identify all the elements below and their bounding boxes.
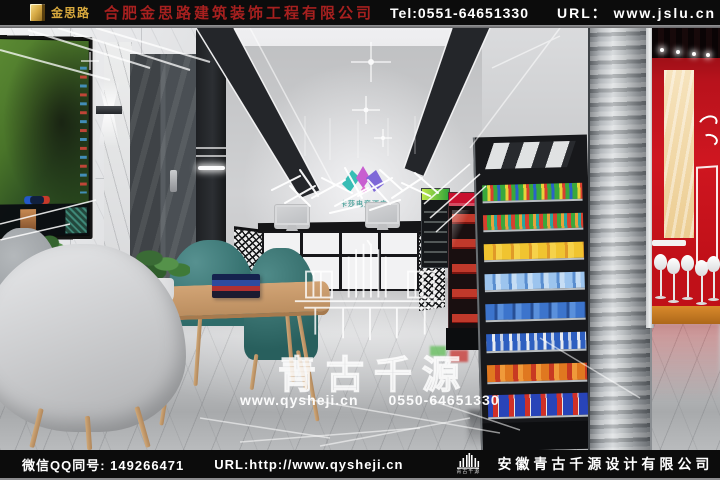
wall-tv <box>0 35 93 241</box>
header-website-url: URL： www.jslu.cn <box>557 3 716 23</box>
hotel-logo-icon <box>336 164 390 198</box>
cola-script-graphic <box>701 132 719 148</box>
header-telephone: Tel:0551-64651330 <box>390 5 529 21</box>
jinsilu-logo-icon <box>30 4 45 21</box>
red-room-floor-reflection <box>642 322 720 418</box>
bar-stool <box>654 254 667 270</box>
tv-game-screen <box>0 39 89 237</box>
book-stack <box>212 274 260 298</box>
header-bar: 金思路 合肥金思路建筑装饰工程有限公司 Tel:0551-64651330 UR… <box>0 0 720 25</box>
red-cola-room <box>652 28 720 324</box>
bar-stool <box>667 258 680 274</box>
interior-render: 卡莎电竞酒店 <box>0 28 720 450</box>
door-handle <box>170 170 177 192</box>
qingu-building-icon <box>455 453 481 469</box>
footer-company-name: 安徽青古千源设计有限公司 <box>497 454 713 474</box>
footer-logo-caption: 青古千源 <box>456 468 480 475</box>
stainless-steel-pillar <box>588 28 652 450</box>
desktop-computer-left <box>274 204 310 229</box>
tv-score-pill <box>24 196 50 204</box>
bar-counter <box>652 240 686 246</box>
bar-stool <box>681 255 694 271</box>
snack-shelf <box>473 135 595 450</box>
green-sign-reflection <box>430 346 446 356</box>
tv-hud-right <box>80 67 87 194</box>
promo-image: 金思路 合肥金思路建筑装饰工程有限公司 Tel:0551-64651330 UR… <box>0 0 720 480</box>
footer-bar: 微信QQ同号: 149266471 URL:http://www.qysheji… <box>0 450 720 478</box>
tv-minimap <box>65 207 86 233</box>
cream-texture-panel <box>664 70 694 238</box>
red-sign-reflection <box>450 350 468 362</box>
shelf-base <box>482 420 595 450</box>
drink-cooler-green <box>421 188 450 268</box>
footer-website-url: URL:http://www.qysheji.cn <box>214 457 403 472</box>
bar-stool <box>707 256 720 272</box>
desktop-computer-right <box>365 202 400 228</box>
shelf-light-panels <box>485 141 576 169</box>
header-logo-text: 金思路 <box>51 4 90 21</box>
led-wall-light <box>198 166 225 170</box>
footer-qq-number: 微信QQ同号: 149266471 <box>22 455 184 474</box>
qingu-logo: 青古千源 <box>455 453 481 475</box>
cola-script-graphic <box>696 113 720 134</box>
white-frame-outline <box>696 165 718 265</box>
wall-sconce-light <box>96 106 122 114</box>
header-company-name: 合肥金思路建筑装饰工程有限公司 <box>104 2 374 23</box>
